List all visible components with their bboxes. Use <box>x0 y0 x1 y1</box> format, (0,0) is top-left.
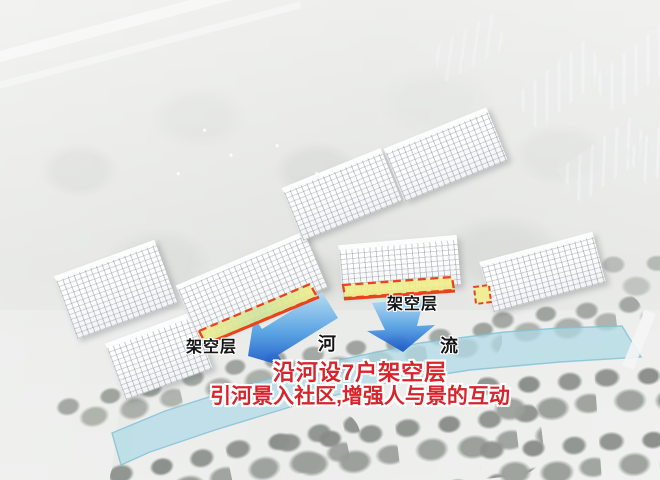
headline-line2: 引河景入社区,增强人与景的互动 <box>130 385 590 409</box>
river-label-char-1: 河 <box>318 330 336 356</box>
stilt-floor-label-left: 架空层 <box>186 333 237 357</box>
stilt-zone-small <box>474 285 491 304</box>
site-plan-diagram: 架空层 架空层 河 流 沿河设7户架空层 引河景入社区,增强人与景的互动 <box>0 0 660 480</box>
headline-line1: 沿河设7户架空层 <box>130 361 590 385</box>
headline: 沿河设7户架空层 引河景入社区,增强人与景的互动 <box>130 361 590 409</box>
stilt-floor-label-mid: 架空层 <box>387 290 438 314</box>
river-label-char-2: 流 <box>440 332 458 358</box>
